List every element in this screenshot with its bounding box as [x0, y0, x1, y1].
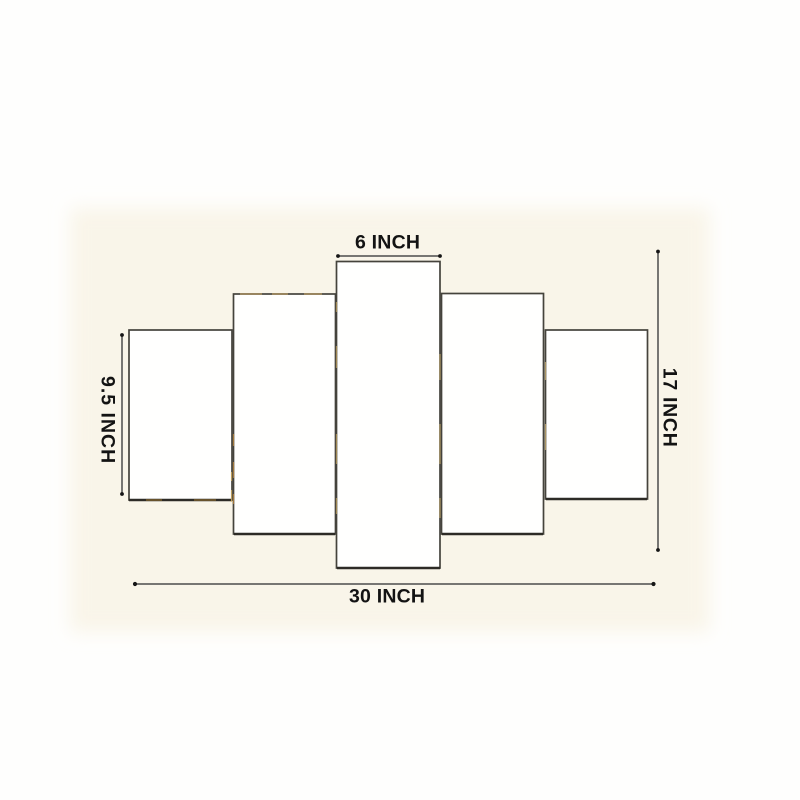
svg-text:6 INCH: 6 INCH — [355, 232, 420, 254]
svg-text:9.5 INCH: 9.5 INCH — [97, 376, 119, 464]
svg-text:30 INCH: 30 INCH — [349, 586, 425, 608]
svg-text:17 INCH: 17 INCH — [659, 368, 681, 448]
